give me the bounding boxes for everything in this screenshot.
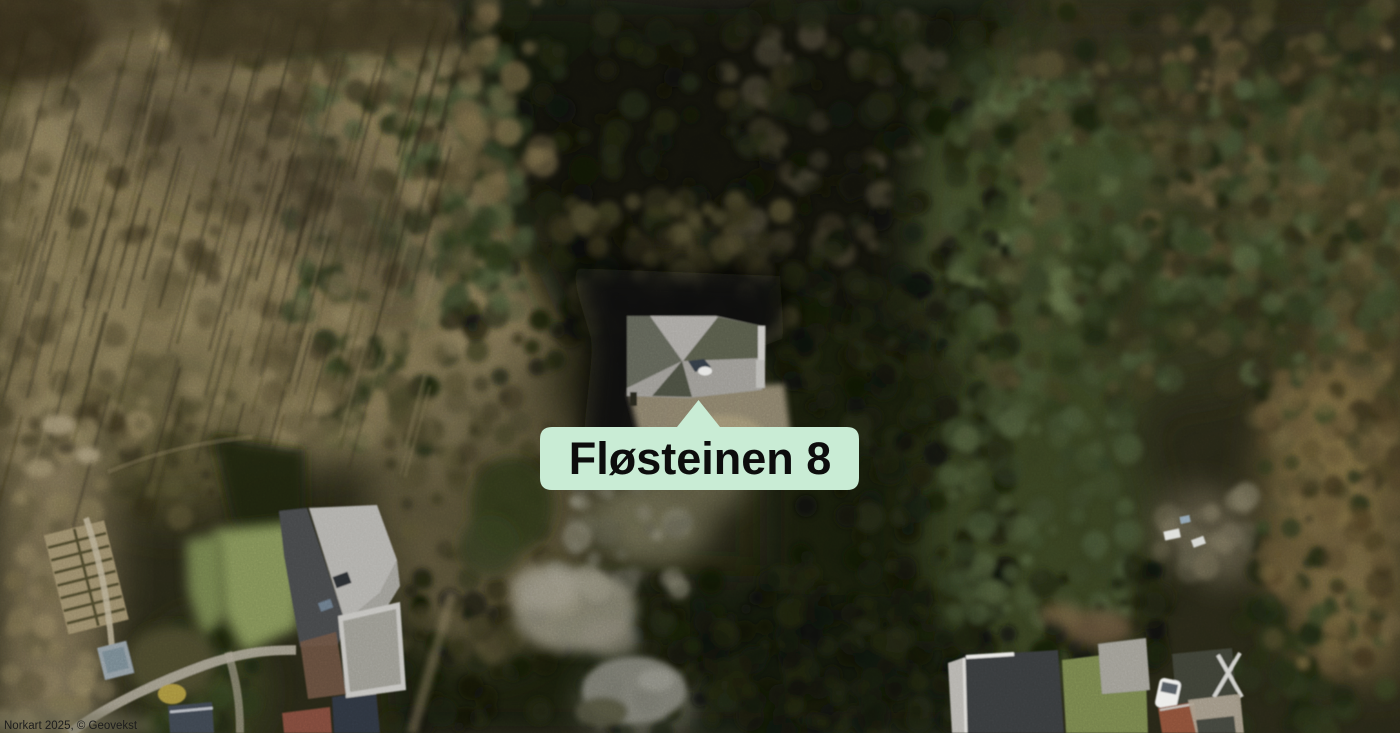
svg-text:Fløsteinen 8: Fløsteinen 8 <box>569 433 832 484</box>
svg-text:Norkart 2025, © Geovekst: Norkart 2025, © Geovekst <box>4 720 138 732</box>
